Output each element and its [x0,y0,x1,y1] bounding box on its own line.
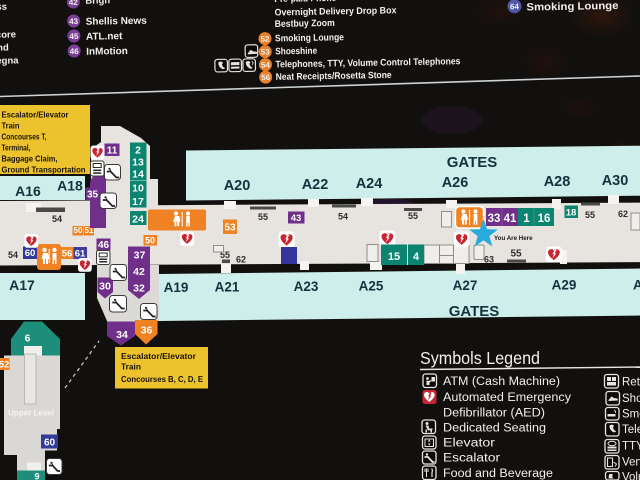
svg-text:GATES: GATES [447,154,498,171]
svg-text:Smoking Lounge: Smoking Lounge [526,0,618,14]
svg-text:42: 42 [133,266,145,278]
svg-text:9: 9 [34,472,39,480]
svg-text:54: 54 [261,61,271,70]
svg-text:32: 32 [133,283,145,295]
svg-text:A17: A17 [9,277,35,293]
svg-text:You Are Here: You Are Here [494,235,533,242]
svg-text:Overnight Delivery Drop Box: Overnight Delivery Drop Box [274,5,397,18]
svg-text:53: 53 [261,48,271,57]
svg-text:Concourses B, C, D, E: Concourses B, C, D, E [121,374,203,384]
svg-text:13: 13 [132,157,144,169]
svg-text:62: 62 [618,209,628,219]
svg-text:Brigh: Brigh [85,0,110,7]
svg-text:Ground Transportation: Ground Transportation [2,165,86,175]
svg-text:Automated Emergency: Automated Emergency [443,392,571,404]
svg-text:55: 55 [258,212,268,222]
svg-text:42: 42 [69,0,79,7]
svg-text:11: 11 [107,146,118,157]
svg-text:1: 1 [523,213,530,225]
svg-text:55: 55 [510,249,522,260]
svg-text:Vending: Vending [622,457,640,469]
svg-text:Shellis News: Shellis News [86,16,148,28]
svg-text:Train: Train [2,121,20,131]
svg-text:10: 10 [132,183,144,195]
svg-text:37: 37 [134,250,146,262]
svg-text:24: 24 [132,214,144,226]
svg-text:ATL.net: ATL.net [86,31,123,43]
svg-text:A16: A16 [15,183,41,199]
svg-text:50: 50 [74,226,83,235]
svg-text:egna: egna [0,55,19,66]
svg-text:A24: A24 [356,176,383,192]
svg-text:30: 30 [99,281,111,293]
svg-text:Defibrillator (AED): Defibrillator (AED) [443,408,545,420]
svg-text:Shoeshine: Shoeshine [275,46,317,58]
svg-text:A26: A26 [442,175,469,191]
svg-text:nd: nd [0,43,9,54]
svg-text:Telephones: Telephones [622,424,640,436]
svg-text:Baggage Claim,: Baggage Claim, [2,154,58,164]
svg-text:A28: A28 [544,174,571,190]
svg-text:ss: ss [0,2,7,13]
svg-text:55: 55 [585,210,595,220]
svg-text:63: 63 [484,255,494,265]
svg-text:17: 17 [132,196,144,208]
svg-text:62: 62 [236,255,246,265]
svg-text:A3: A3 [633,278,640,293]
svg-text:46: 46 [70,47,80,56]
svg-text:41: 41 [504,213,517,225]
svg-text:Terminal,: Terminal, [2,143,31,153]
svg-text:43: 43 [291,213,302,224]
svg-text:18: 18 [566,208,577,219]
svg-text:A25: A25 [359,279,384,294]
svg-text:14: 14 [132,169,144,181]
svg-text:Shoeshine: Shoeshine [622,393,640,405]
svg-text:A20: A20 [224,178,251,194]
svg-text:54: 54 [52,214,62,224]
svg-text:Dedicated Seating: Dedicated Seating [443,423,546,435]
svg-text:64: 64 [510,2,520,11]
svg-text:GATES: GATES [449,303,500,320]
svg-text:52: 52 [0,360,9,371]
svg-text:A18: A18 [57,178,83,194]
svg-text:61: 61 [75,249,86,260]
svg-text:36: 36 [141,325,153,337]
svg-text:15: 15 [388,251,400,263]
svg-text:A23: A23 [294,279,319,294]
svg-text:Retail: Retail [622,377,640,389]
svg-text:46: 46 [98,240,110,251]
svg-text:Escalator/Elevator: Escalator/Elevator [2,110,70,120]
svg-text:A19: A19 [164,280,189,295]
svg-text:Smoking Lounge: Smoking Lounge [275,32,344,44]
svg-text:35: 35 [87,190,99,201]
svg-text:Train: Train [121,362,141,372]
svg-text:54: 54 [338,212,348,222]
svg-text:45: 45 [69,32,79,41]
svg-text:60: 60 [25,248,36,259]
svg-text:Bestbuy Zoom: Bestbuy Zoom [275,18,335,30]
svg-text:6: 6 [25,334,31,345]
svg-text:56: 56 [62,249,73,260]
svg-text:Volume: Volume [622,472,640,480]
svg-text:Neat Receipts/Rosetta Stone: Neat Receipts/Rosetta Stone [276,70,392,83]
svg-text:A29: A29 [552,278,577,293]
svg-text:56: 56 [261,73,271,82]
svg-text:A27: A27 [453,278,478,293]
svg-text:ATM (Cash Machine): ATM (Cash Machine) [443,376,560,388]
svg-text:Elevator: Elevator [443,438,495,450]
svg-text:43: 43 [69,17,79,26]
svg-text:Symbols Legend: Symbols Legend [420,348,540,368]
svg-text:33: 33 [488,213,501,225]
svg-text:Smoking: Smoking [622,409,640,421]
svg-text:Concourses T,: Concourses T, [2,132,47,142]
svg-text:2: 2 [135,145,141,157]
svg-text:Escalator/Elevator: Escalator/Elevator [121,351,197,361]
svg-text:core: core [0,29,16,40]
svg-text:TTY: TTY [622,441,640,453]
svg-text:50: 50 [145,236,155,246]
svg-text:55: 55 [408,211,418,221]
svg-text:Food and Beverage: Food and Beverage [443,468,553,480]
svg-text:60: 60 [44,438,56,449]
svg-text:A21: A21 [215,280,240,295]
svg-text:Escalator: Escalator [443,453,500,465]
svg-text:16: 16 [538,213,551,225]
svg-text:Upper Level: Upper Level [8,408,54,418]
svg-text:A30: A30 [602,173,629,189]
svg-text:53: 53 [224,223,236,234]
svg-text:34: 34 [116,329,128,341]
svg-text:4: 4 [413,251,420,263]
svg-text:A22: A22 [302,177,329,193]
svg-text:52: 52 [260,35,270,44]
svg-text:54: 54 [8,250,18,260]
svg-text:InMotion: InMotion [86,46,128,58]
